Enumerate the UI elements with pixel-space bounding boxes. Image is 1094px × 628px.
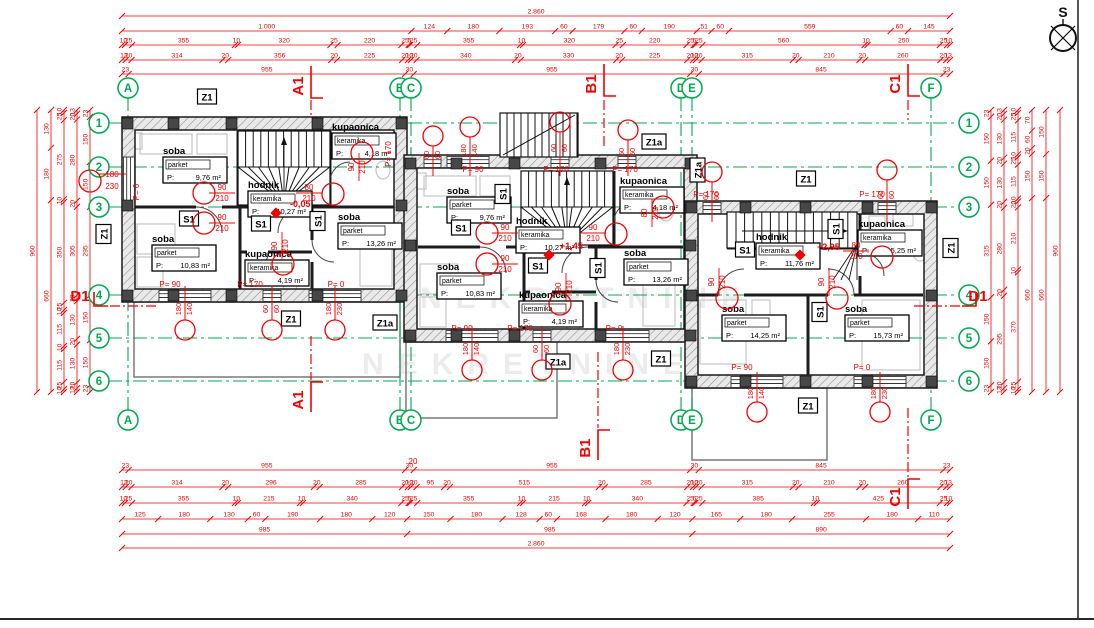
svg-text:230: 230 [623,343,632,356]
room-label: sobaparketP:9,76 m² [163,146,227,183]
svg-text:210: 210 [1011,233,1018,245]
dim-chain: 23955309553084523 [119,463,953,474]
svg-text:S1: S1 [739,246,751,257]
dim-chain: 985985890 [119,527,953,538]
dim-chain: 130180660 [44,107,55,395]
svg-text:20: 20 [997,289,1004,297]
svg-text:+2,95: +2,95 [817,242,840,252]
svg-text:180: 180 [886,512,898,519]
svg-text:315: 315 [984,245,991,257]
svg-text:425: 425 [873,496,885,503]
svg-text:P:: P: [252,207,259,216]
svg-text:985: 985 [259,527,271,534]
svg-text:20: 20 [859,53,867,60]
dim-chain: 1320314203562022520102034020330202252010… [119,53,953,64]
svg-text:145: 145 [923,24,935,31]
svg-text:Z1: Z1 [285,315,297,326]
svg-text:parket: parket [442,278,462,285]
svg-text:5: 5 [96,333,103,345]
svg-text:180: 180 [324,303,333,316]
svg-text:23: 23 [984,385,991,393]
svg-text:B1: B1 [583,74,600,93]
svg-text:10,83 m²: 10,83 m² [465,289,495,298]
dim-chain: 1251801306019018012015018012860168180120… [119,512,953,523]
svg-text:20: 20 [997,157,1004,165]
svg-text:soba: soba [447,186,470,197]
svg-text:193: 193 [522,24,534,31]
svg-text:P:: P: [441,289,448,298]
column [312,118,323,129]
axis-bubble: E [682,410,702,430]
svg-text:130: 130 [70,314,77,326]
svg-text:30: 30 [691,67,699,74]
svg-text:soba: soba [163,146,186,157]
svg-text:210: 210 [215,194,229,203]
column [595,158,606,169]
svg-text:soba: soba [845,304,868,315]
svg-text:A: A [124,83,132,95]
svg-text:20: 20 [125,53,133,60]
svg-text:180: 180 [459,144,468,157]
floorplan-drawing: NEKRETNINE NEKRETNINE 2.8601.00012418019… [0,0,1094,628]
svg-text:305: 305 [70,245,77,257]
svg-text:20: 20 [222,53,230,60]
svg-text:P:: P: [156,261,163,270]
section-marker: A1 [290,336,323,412]
svg-text:330: 330 [563,53,575,60]
svg-text:S1: S1 [455,224,467,235]
dim-chain: 1320314202962028520102095205152028520102… [119,480,953,491]
svg-text:25: 25 [695,38,703,45]
dim-chain: 1.0001241801936017960190516055960145 [119,24,953,35]
svg-text:260: 260 [897,53,909,60]
svg-text:C: C [407,83,415,95]
axis-bubble: 1 [959,113,979,133]
svg-text:340: 340 [346,496,358,503]
svg-text:13,26 m²: 13,26 m² [366,239,396,248]
svg-text:150: 150 [1039,126,1046,138]
svg-text:90: 90 [707,277,716,286]
svg-text:180: 180 [869,387,878,400]
svg-text:-0,05: -0,05 [290,199,311,209]
svg-text:985: 985 [544,527,556,534]
svg-text:180: 180 [746,387,755,400]
element-marker: Z1 [198,89,217,104]
svg-text:+1,45: +1,45 [560,241,583,251]
svg-text:80: 80 [640,208,649,217]
column [686,202,697,213]
svg-text:150: 150 [984,133,991,145]
column [800,202,811,213]
svg-text:20: 20 [695,480,703,487]
svg-text:130: 130 [223,512,235,519]
svg-text:120: 120 [384,512,396,519]
svg-text:60: 60 [433,151,442,159]
svg-text:23: 23 [943,463,951,470]
svg-text:140: 140 [757,387,766,400]
svg-text:280: 280 [997,243,1004,255]
element-marker: S1 [529,258,548,273]
north-compass: S [1050,4,1076,51]
svg-text:hodnik: hodnik [248,180,280,191]
svg-text:P= 0: P= 0 [328,280,345,289]
column [509,158,520,169]
svg-text:20: 20 [859,480,867,487]
svg-text:10,83 m²: 10,83 m² [180,261,210,270]
column [800,376,811,387]
svg-text:125: 125 [134,512,146,519]
column [405,330,416,341]
svg-text:60: 60 [701,192,710,200]
column [122,200,133,211]
element-marker: S1 [452,220,471,235]
svg-text:60: 60 [545,512,553,519]
svg-text:230: 230 [105,182,119,191]
svg-text:314: 314 [171,53,183,60]
column [405,240,416,251]
svg-text:keramika: keramika [524,306,553,313]
element-marker: S1 [736,242,755,257]
svg-text:20: 20 [997,113,1004,121]
svg-text:150: 150 [83,312,90,324]
room-label: sobaparketP:13,26 m² [338,212,402,249]
svg-text:60: 60 [896,24,904,31]
svg-text:25: 25 [695,496,703,503]
svg-text:215: 215 [263,496,275,503]
svg-text:90: 90 [347,162,356,171]
svg-text:23: 23 [83,109,90,117]
svg-text:P:: P: [342,239,349,248]
svg-text:20: 20 [598,480,606,487]
svg-text:15,73 m²: 15,73 m² [873,331,903,340]
svg-text:23: 23 [83,385,90,393]
svg-text:25: 25 [410,38,418,45]
svg-text:370: 370 [1011,321,1018,333]
svg-text:1: 1 [96,118,103,130]
svg-text:356: 356 [274,53,286,60]
svg-text:60: 60 [628,148,637,156]
svg-text:210: 210 [215,224,229,233]
element-marker: S1 [310,212,325,231]
svg-text:255: 255 [823,512,835,519]
svg-text:20: 20 [1011,200,1018,208]
svg-text:60: 60 [272,305,281,313]
svg-text:180: 180 [44,168,51,180]
axis-bubble: F [921,78,941,98]
element-marker: Z1 [282,311,301,326]
svg-text:20: 20 [70,200,77,208]
dim-chain: 150150660 [1039,107,1050,395]
axis-bubble: 2 [959,157,979,177]
svg-text:25: 25 [1011,113,1018,121]
element-marker: Z1a [546,354,570,369]
axis-bubble: C [401,410,421,430]
svg-text:845: 845 [815,67,827,74]
svg-text:315: 315 [742,480,754,487]
element-marker: Z1 [799,398,818,413]
axis-bubble: 3 [959,197,979,217]
svg-text:210: 210 [849,252,863,261]
dim-chain: 2.860 [119,541,953,552]
dim-chain: 2.860 [119,9,953,20]
svg-text:S1: S1 [594,261,605,273]
column [226,118,237,129]
svg-text:A1: A1 [290,76,307,95]
svg-text:120: 120 [669,512,681,519]
svg-text:60: 60 [531,345,540,353]
svg-text:140: 140 [185,303,194,316]
column [396,118,407,129]
svg-text:C1: C1 [887,487,904,506]
svg-text:P= 0: P= 0 [854,363,871,372]
svg-text:385: 385 [753,496,765,503]
element-marker: S1 [180,211,199,226]
column [740,376,751,387]
svg-text:soba: soba [624,248,647,259]
svg-text:340: 340 [632,496,644,503]
column [168,290,179,301]
svg-text:Z1: Z1 [201,93,213,104]
svg-text:P:: P: [167,173,174,182]
element-marker: S1 [828,220,843,239]
svg-text:845: 845 [815,463,827,470]
svg-text:220: 220 [364,38,376,45]
column [122,118,133,129]
svg-text:kupaonica: kupaonica [332,122,380,133]
svg-text:5,25 m²: 5,25 m² [891,246,917,255]
axis-bubble: F [921,410,941,430]
svg-text:6: 6 [966,376,972,388]
svg-text:150: 150 [984,313,991,325]
column [685,330,696,341]
svg-text:Z1: Z1 [100,228,111,240]
svg-text:115: 115 [57,324,64,335]
axis-bubble: 6 [959,371,979,391]
svg-text:140: 140 [470,144,479,157]
svg-text:P:: P: [849,331,856,340]
svg-text:20: 20 [222,480,230,487]
svg-text:25: 25 [615,38,623,45]
svg-text:60: 60 [712,192,721,200]
svg-text:13,26 m²: 13,26 m² [652,275,682,284]
svg-text:1: 1 [966,118,973,130]
svg-text:180: 180 [471,512,483,519]
svg-text:parket: parket [157,250,177,257]
svg-text:P= 90: P= 90 [462,165,484,174]
column [740,202,751,213]
svg-text:210: 210 [498,265,512,274]
column [926,290,937,301]
svg-text:80: 80 [852,241,861,250]
svg-text:S1: S1 [255,220,267,231]
svg-text:P:: P: [628,275,635,284]
dim-chain: 706020150660 [1025,107,1036,395]
svg-text:F: F [927,415,934,427]
svg-text:20: 20 [125,480,133,487]
svg-text:168: 168 [576,512,588,519]
svg-text:parket: parket [168,162,188,169]
dim-chain: 2315015031515015023 [984,107,995,395]
svg-text:P= 170: P= 170 [507,324,533,333]
svg-text:25: 25 [410,496,418,503]
svg-text:295: 295 [997,333,1004,345]
svg-text:C: C [407,415,415,427]
svg-text:51: 51 [700,24,708,31]
element-marker: Z1a [642,134,666,149]
column [312,290,323,301]
watermark-text: NEKRETNINE [362,348,697,381]
column [686,376,697,387]
svg-text:225: 225 [649,53,661,60]
svg-text:P= 90: P= 90 [451,324,473,333]
svg-text:350: 350 [57,247,64,259]
svg-text:20: 20 [615,53,623,60]
column [926,376,937,387]
svg-text:P= 170: P= 170 [237,280,263,289]
axis-bubble: 6 [89,371,109,391]
svg-text:5: 5 [966,333,973,345]
svg-text:soba: soba [437,262,460,273]
svg-text:340: 340 [460,53,472,60]
svg-text:225: 225 [364,53,376,60]
svg-text:30: 30 [691,463,699,470]
element-marker: Z1 [652,351,671,366]
svg-text:soba: soba [152,234,175,245]
svg-text:S1: S1 [499,187,510,199]
svg-text:20: 20 [695,53,703,60]
svg-text:kupaonica: kupaonica [620,176,668,187]
svg-text:355: 355 [463,38,475,45]
svg-text:Z1: Z1 [655,355,667,366]
svg-text:960: 960 [30,245,37,257]
dim-chain: 960 [1053,107,1064,395]
axis-bubble: A [118,410,138,430]
svg-text:355: 355 [463,496,475,503]
svg-text:230: 230 [335,303,344,316]
svg-text:keramika: keramika [521,232,550,239]
svg-text:515: 515 [519,480,531,487]
svg-text:S1: S1 [314,214,325,226]
svg-text:parket: parket [850,320,870,327]
svg-text:250: 250 [898,38,910,45]
dim-chain: 1025275103502510115101152510 [57,107,68,395]
svg-text:P= 0: P= 0 [606,324,623,333]
svg-text:20: 20 [313,480,321,487]
svg-text:320: 320 [564,38,576,45]
svg-text:23: 23 [122,463,130,470]
svg-text:2.860: 2.860 [527,9,544,16]
svg-text:285: 285 [640,480,652,487]
svg-text:180: 180 [626,512,638,519]
svg-text:25: 25 [125,496,133,503]
door-mark-circle [826,287,848,309]
svg-text:210: 210 [498,234,512,243]
svg-text:210: 210 [823,53,835,60]
svg-text:25: 25 [1011,157,1018,165]
svg-text:60: 60 [1025,135,1032,143]
furniture [197,134,227,154]
svg-text:Z1: Z1 [802,402,814,413]
svg-text:90: 90 [501,254,510,263]
svg-text:190: 190 [287,512,299,519]
svg-text:124: 124 [424,24,436,31]
svg-text:9,76 m²: 9,76 m² [480,213,506,222]
dim-chain: 960 [30,107,41,395]
svg-text:kupaonica: kupaonica [858,219,906,230]
section-marker: C1 [887,408,920,509]
svg-text:60: 60 [887,191,896,199]
svg-text:110: 110 [929,512,940,519]
svg-text:P= 0: P= 0 [132,183,141,200]
column [396,290,407,301]
svg-text:hodnik: hodnik [516,216,548,227]
svg-text:140: 140 [472,343,481,356]
svg-text:180: 180 [461,343,470,356]
element-marker: Z1 [943,239,958,258]
element-marker: S1 [590,259,605,278]
svg-text:20: 20 [443,480,451,487]
svg-text:260: 260 [897,480,909,487]
svg-text:355: 355 [178,496,190,503]
svg-text:60: 60 [542,345,551,353]
dim-chain: 2315015029515015023 [83,107,94,395]
svg-text:314: 314 [171,480,183,487]
svg-text:60: 60 [253,512,261,519]
dim-chain: 1025355103202522025525355103202522025525… [119,38,953,49]
svg-text:20: 20 [410,53,418,60]
svg-text:60: 60 [560,144,569,152]
svg-text:keramika: keramika [625,192,654,199]
svg-text:220: 220 [649,38,661,45]
svg-text:130: 130 [997,133,1004,145]
svg-text:3: 3 [966,202,972,214]
svg-text:150: 150 [1025,170,1032,182]
svg-text:180: 180 [174,303,183,316]
svg-text:A1: A1 [290,390,307,409]
svg-text:660: 660 [1039,289,1046,301]
column [595,330,606,341]
svg-text:S1: S1 [532,262,544,273]
svg-text:Z1a: Z1a [377,319,394,330]
svg-text:4,19 m²: 4,19 m² [552,317,578,326]
svg-text:keramika: keramika [863,235,892,242]
column [926,202,937,213]
svg-text:3: 3 [96,202,102,214]
svg-text:80: 80 [305,183,314,192]
svg-text:13: 13 [997,386,1004,394]
svg-text:6: 6 [96,376,102,388]
svg-text:20: 20 [330,53,338,60]
svg-text:180: 180 [179,512,191,519]
compass-label: S [1058,4,1067,20]
svg-text:20: 20 [514,53,522,60]
svg-text:559: 559 [804,24,816,31]
column [686,290,697,301]
section-marker: A1 [290,66,323,116]
axis-bubble: 5 [89,328,109,348]
svg-text:130: 130 [44,123,51,135]
svg-text:660: 660 [44,290,51,302]
svg-text:4,19 m²: 4,19 m² [278,276,304,285]
svg-text:560: 560 [778,38,790,45]
column [862,376,873,387]
svg-text:20: 20 [70,338,77,346]
svg-text:230: 230 [880,387,889,400]
svg-text:210: 210 [586,234,600,243]
svg-text:P= 170: P= 170 [543,165,569,174]
svg-text:150: 150 [1039,170,1046,182]
dim-chain: 13201302013020280202952013 [997,107,1008,395]
